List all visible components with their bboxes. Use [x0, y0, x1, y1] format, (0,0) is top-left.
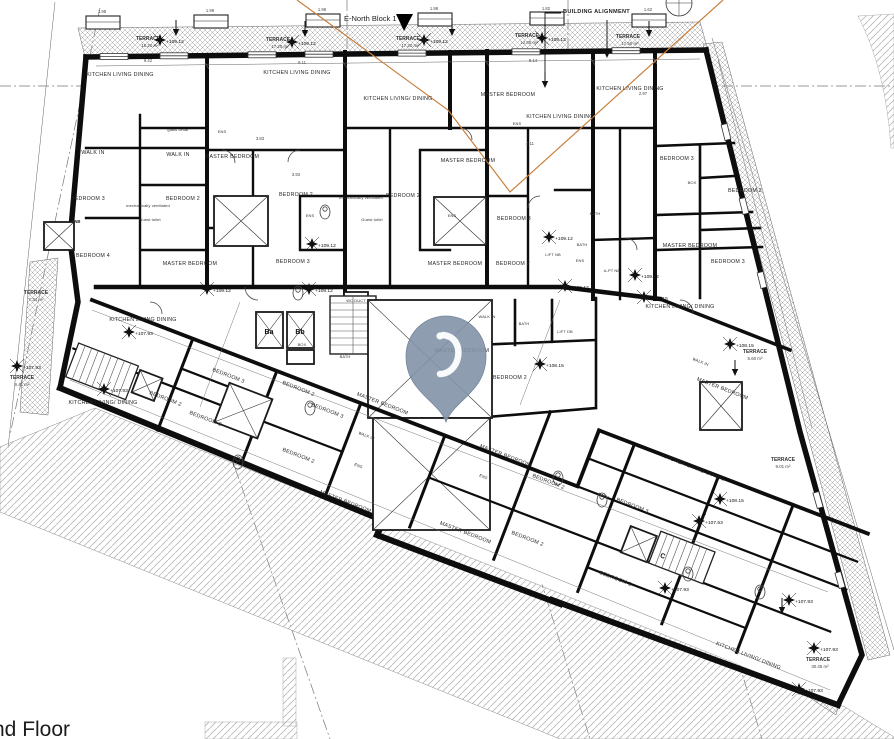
svg-text:A-PT NB: A-PT NB: [604, 268, 621, 273]
svg-text:TERRACE: TERRACE: [771, 457, 796, 463]
svg-text:3.93: 3.93: [292, 172, 301, 177]
box-room: [287, 350, 314, 364]
svg-text:KITCHEN LIVING/ DINING: KITCHEN LIVING/ DINING: [363, 96, 432, 102]
svg-text:BEDROOM 3: BEDROOM 3: [71, 196, 105, 202]
svg-text:9.42: 9.42: [144, 58, 153, 63]
svg-text:9.14: 9.14: [529, 58, 538, 63]
svg-text:+109.12: +109.12: [641, 274, 659, 280]
svg-text:+109.12: +109.12: [548, 37, 566, 43]
svg-text:TERRACE: TERRACE: [616, 34, 641, 40]
svg-text:1.98: 1.98: [430, 6, 439, 11]
svg-text:TERRACE: TERRACE: [515, 33, 540, 39]
svg-text:+109.12: +109.12: [571, 285, 589, 291]
svg-text:MASTER BEDROOM: MASTER BEDROOM: [481, 92, 535, 98]
svg-text:17.20 m²: 17.20 m²: [271, 44, 289, 49]
svg-text:MASTER BEDROOM: MASTER BEDROOM: [205, 154, 259, 160]
svg-text:BATH: BATH: [340, 354, 351, 359]
svg-text:LIFT DB: LIFT DB: [557, 329, 573, 334]
svg-text:BOX: BOX: [688, 180, 697, 185]
svg-text:+108.15: +108.15: [650, 296, 668, 302]
svg-text:BEDROOM 4: BEDROOM 4: [76, 253, 110, 259]
svg-text:TERRACE: TERRACE: [743, 349, 768, 355]
svg-text:2.97: 2.97: [639, 91, 648, 96]
svg-text:+107.93: +107.93: [110, 388, 128, 394]
floor-plan-canvas: E-North Block 1 BUILDING ALIGNMENT nd Fl…: [0, 0, 894, 739]
svg-text:3.83: 3.83: [256, 136, 265, 141]
svg-text:KITCHEN LIVING DINING: KITCHEN LIVING DINING: [596, 86, 663, 92]
svg-text:BEDROOM 3: BEDROOM 3: [711, 259, 745, 265]
svg-text:BEDROOM 2: BEDROOM 2: [166, 196, 200, 202]
svg-text:7.34 m²: 7.34 m²: [29, 297, 44, 302]
svg-text:+107.93: +107.93: [23, 365, 41, 371]
svg-text:ENS: ENS: [576, 258, 585, 263]
svg-text:WC DUCT: WC DUCT: [346, 298, 366, 303]
svg-text:+107.93: +107.93: [135, 331, 153, 337]
svg-text:+107.63: +107.63: [705, 520, 723, 526]
block-title: E-North Block 1: [344, 14, 397, 23]
neighbor-structure-hatch: [283, 658, 296, 726]
svg-text:+108.15: +108.15: [546, 363, 564, 369]
svg-text:KITCHEN LIVING DINING: KITCHEN LIVING DINING: [86, 72, 153, 78]
survey-circle-icon: [666, 0, 692, 16]
svg-text:ENS: ENS: [448, 213, 457, 218]
alignment-label: BUILDING ALIGNMENT: [563, 9, 630, 15]
svg-text:+108.15: +108.15: [736, 343, 754, 349]
svg-text:BATH: BATH: [577, 242, 588, 247]
svg-text:+107.93: +107.93: [820, 647, 838, 653]
svg-text:WALK IN: WALK IN: [81, 150, 104, 156]
svg-text:30.45 m²: 30.45 m²: [811, 664, 829, 669]
svg-text:Guest toilet: Guest toilet: [361, 217, 383, 222]
svg-text:MASTER BEDROOM: MASTER BEDROOM: [663, 243, 717, 249]
svg-text:1.98: 1.98: [98, 9, 107, 14]
svg-text:5.60 m²: 5.60 m²: [748, 356, 763, 361]
svg-text:+109.12: +109.12: [430, 39, 448, 45]
svg-text:ENB: ENB: [72, 219, 81, 224]
svg-text:+109.12: +109.12: [315, 288, 333, 294]
svg-text:9.01 m²: 9.01 m²: [776, 464, 791, 469]
svg-text:WALK IN: WALK IN: [166, 152, 189, 158]
svg-text:KITCHEN LIVING/ DINING: KITCHEN LIVING/ DINING: [68, 400, 137, 406]
svg-text:4.11: 4.11: [526, 141, 535, 146]
svg-text:17.50 m²: 17.50 m²: [621, 41, 639, 46]
svg-text:KITCHEN LIVING DINING: KITCHEN LIVING DINING: [263, 70, 330, 76]
svg-text:ENS: ENS: [218, 129, 227, 134]
svg-text:KITCHEN LIVING DINING: KITCHEN LIVING DINING: [109, 317, 176, 323]
svg-text:TERRACE: TERRACE: [396, 36, 421, 42]
svg-text:BATH: BATH: [590, 211, 601, 216]
svg-text:9.11: 9.11: [298, 60, 307, 65]
svg-text:BEDROOM 3: BEDROOM 3: [660, 156, 694, 162]
svg-text:+109.12: +109.12: [213, 288, 231, 294]
svg-text:BEDROOM 2: BEDROOM 2: [496, 261, 530, 267]
svg-text:BOX: BOX: [298, 342, 307, 347]
svg-text:MASTER BEDROOM: MASTER BEDROOM: [441, 158, 495, 164]
svg-text:Guest toilet: Guest toilet: [139, 217, 161, 222]
svg-text:Ba: Ba: [265, 329, 274, 336]
svg-text:BEDROOM 3: BEDROOM 3: [497, 216, 531, 222]
svg-text:17.20 m²: 17.20 m²: [401, 43, 419, 48]
svg-text:KITCHEN LIVING/ DINING: KITCHEN LIVING/ DINING: [645, 304, 714, 310]
svg-text:+108.15: +108.15: [726, 498, 744, 504]
svg-text:+109.12: +109.12: [555, 236, 573, 242]
svg-text:TERRACE: TERRACE: [806, 657, 831, 663]
svg-text:KITCHEN LIVING DINING: KITCHEN LIVING DINING: [526, 114, 593, 120]
svg-text:ENS: ENS: [306, 213, 315, 218]
svg-text:WALK IN: WALK IN: [479, 314, 496, 319]
svg-text:BATH: BATH: [519, 321, 530, 326]
svg-text:1.62: 1.62: [644, 7, 653, 12]
svg-text:Bb: Bb: [295, 329, 304, 336]
svg-text:+107.93: +107.93: [805, 688, 823, 694]
svg-text:MASTER BEDROOM: MASTER BEDROOM: [163, 261, 217, 267]
svg-text:mechanically ventilated: mechanically ventilated: [339, 195, 383, 200]
svg-text:ENS: ENS: [513, 121, 522, 126]
svg-text:MASTER BEDROOM: MASTER BEDROOM: [428, 261, 482, 267]
svg-text:+109.12: +109.12: [298, 41, 316, 47]
svg-text:+107.93: +107.93: [795, 599, 813, 605]
svg-text:1.82: 1.82: [542, 6, 551, 11]
svg-text:BEDROOM 2: BEDROOM 2: [493, 375, 527, 381]
svg-text:LIFT NB: LIFT NB: [545, 252, 561, 257]
svg-text:9.41 m²: 9.41 m²: [15, 382, 30, 387]
svg-text:BEDROOM 2: BEDROOM 2: [386, 193, 420, 199]
svg-text:mechanically ventilated: mechanically ventilated: [126, 203, 170, 208]
svg-text:BEDROOM 2: BEDROOM 2: [279, 192, 313, 198]
svg-text:TERRACE: TERRACE: [10, 375, 35, 381]
floor-title: nd Floor: [0, 718, 70, 739]
svg-text:glass cellar: glass cellar: [167, 127, 189, 132]
svg-text:BEDROOM 2: BEDROOM 2: [728, 188, 762, 194]
svg-text:BEDROOM 3: BEDROOM 3: [276, 259, 310, 265]
svg-text:+109.12: +109.12: [166, 39, 184, 45]
svg-text:1.99: 1.99: [206, 8, 215, 13]
svg-text:1.98: 1.98: [318, 7, 327, 12]
svg-text:TERRACE: TERRACE: [24, 290, 49, 296]
floor-plan-drawing: E-North Block 1 BUILDING ALIGNMENT nd Fl…: [0, 0, 894, 739]
svg-text:+107.93: +107.93: [671, 587, 689, 593]
svg-text:+109.12: +109.12: [318, 243, 336, 249]
